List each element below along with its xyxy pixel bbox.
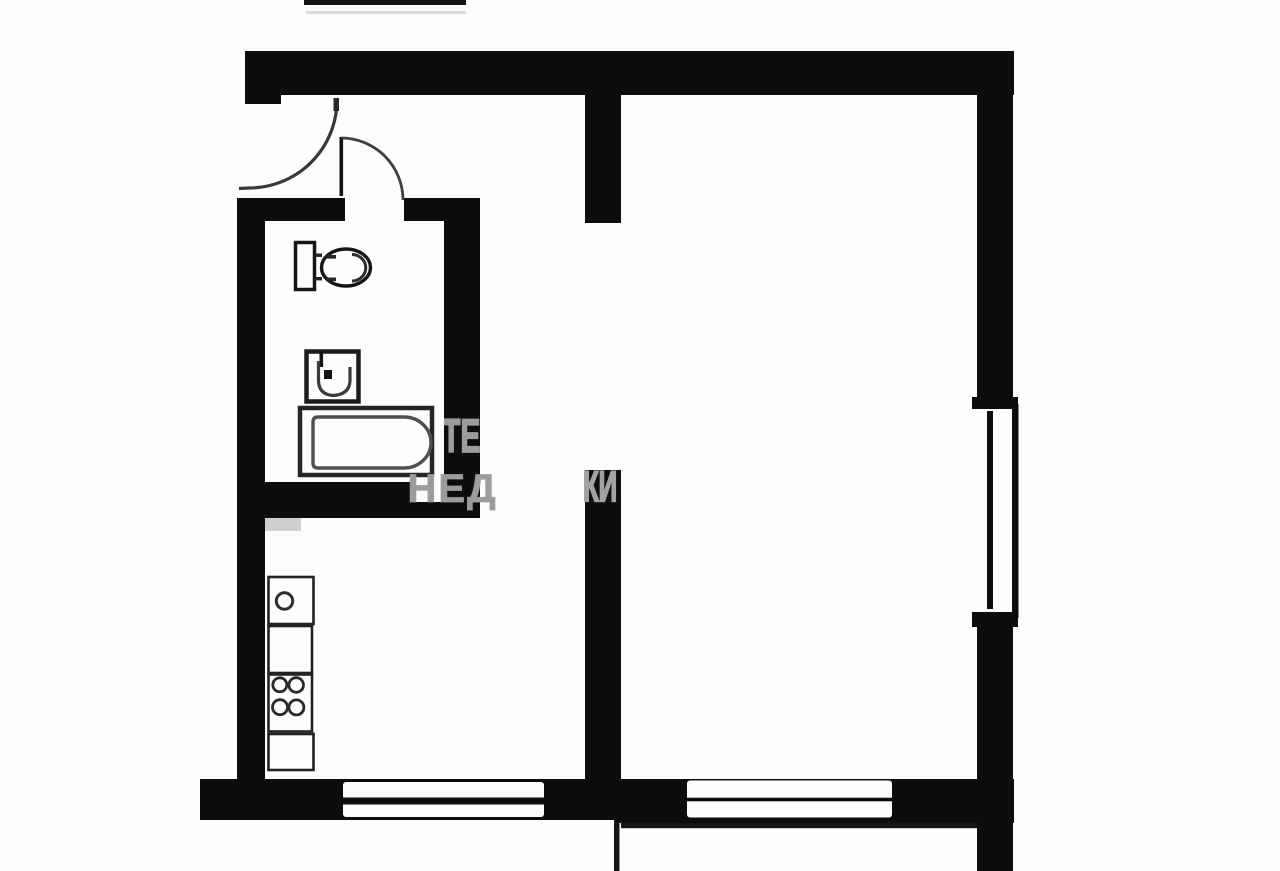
svg-text:ТЕ: ТЕ [442,410,480,462]
svg-text:КИ: КИ [583,463,617,510]
svg-text:НЕД: НЕД [408,467,498,511]
